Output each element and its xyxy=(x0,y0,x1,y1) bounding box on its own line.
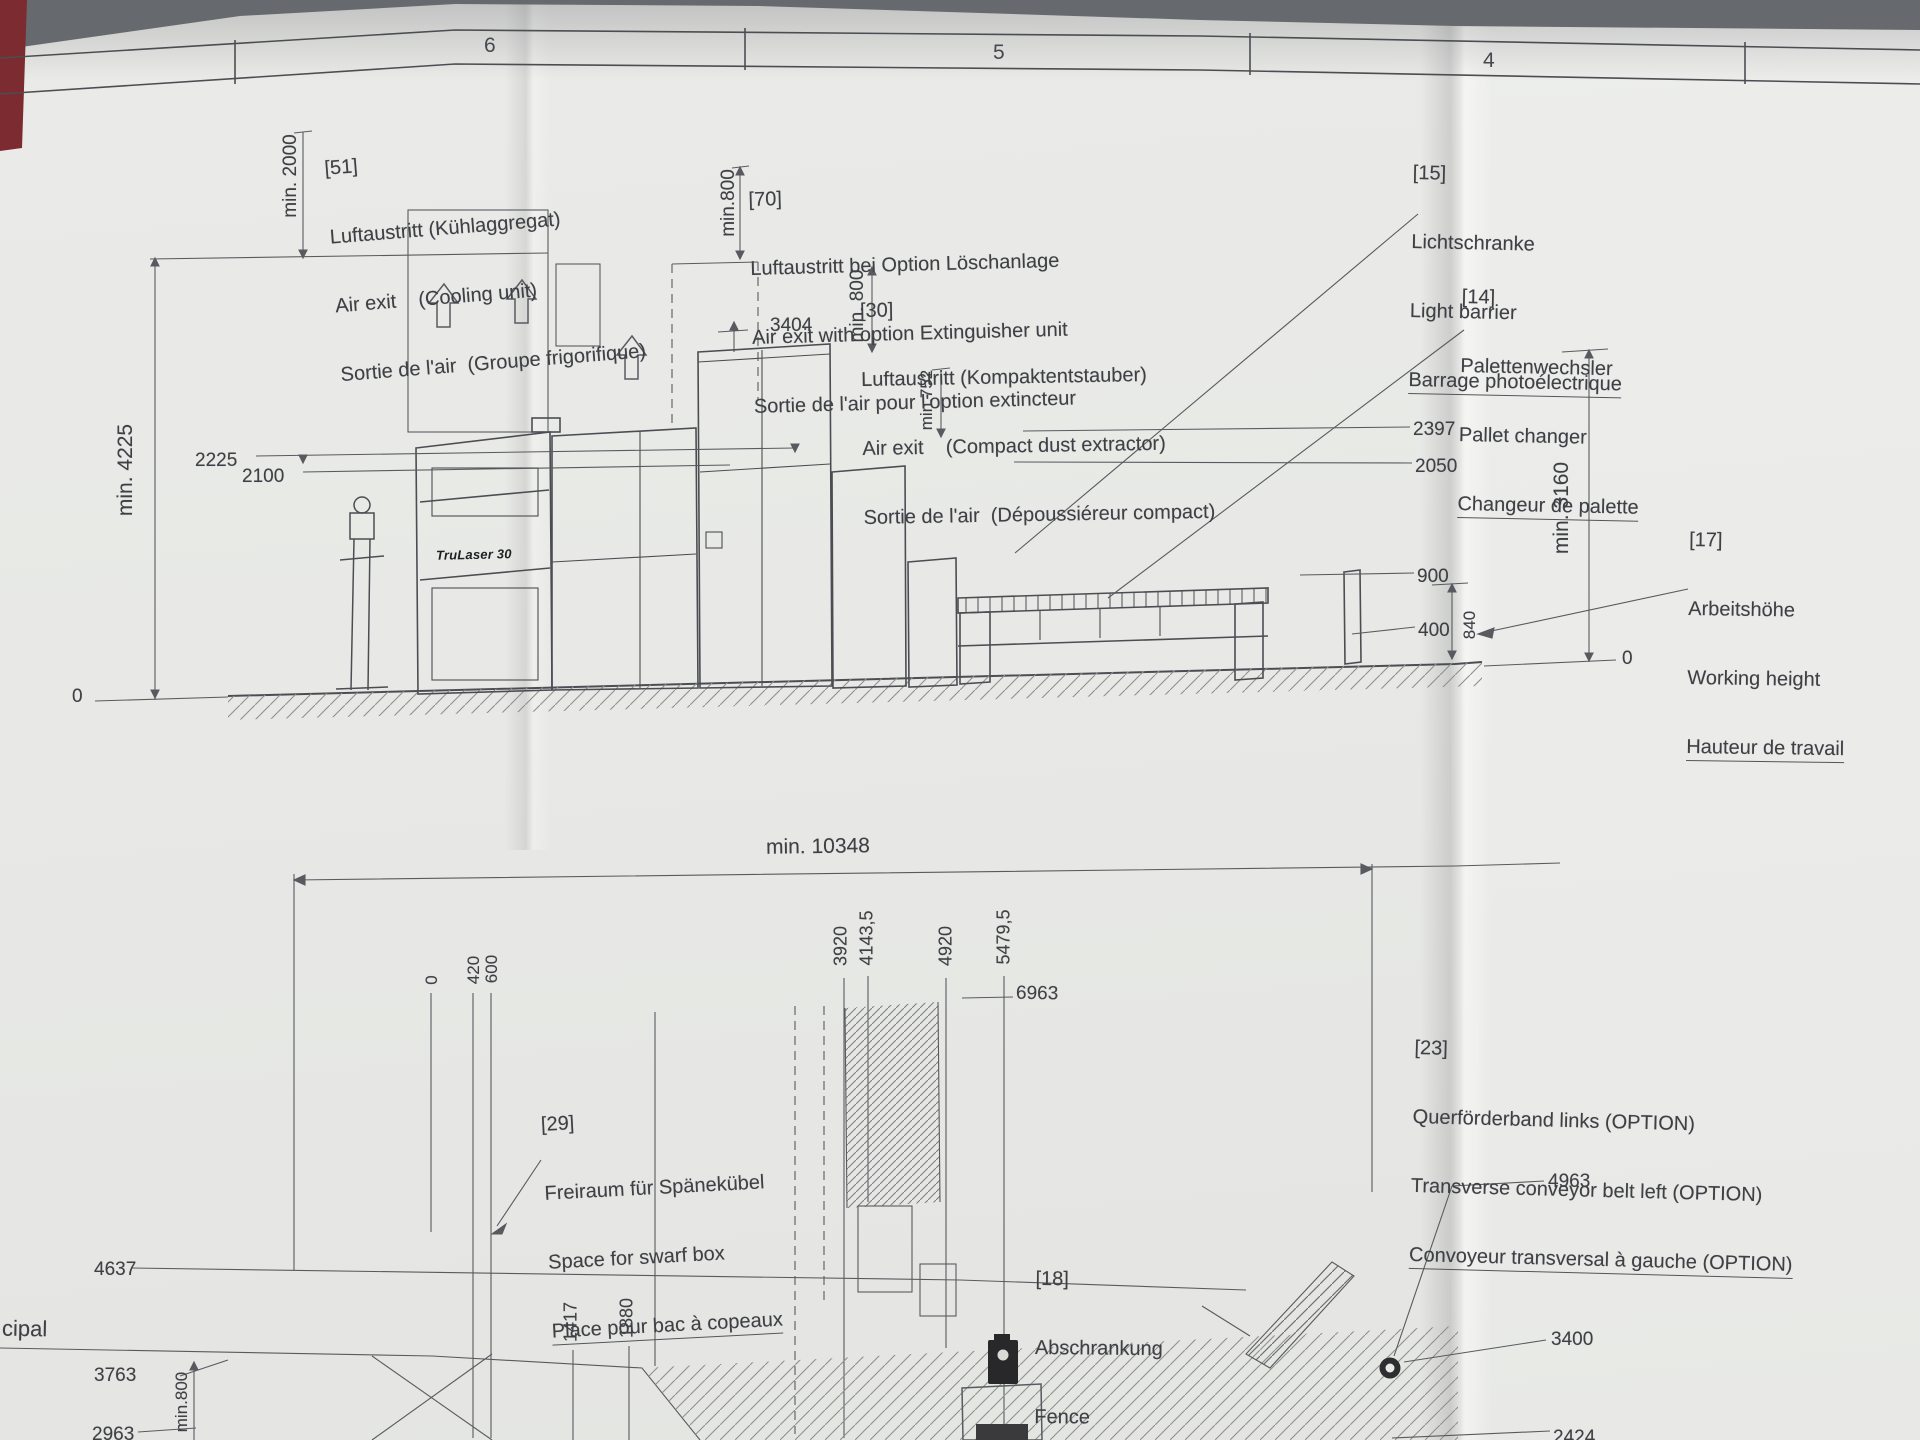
dim-900: 900 xyxy=(1417,566,1449,588)
machine-brand-label: TruLaser 30 xyxy=(436,546,512,563)
dim-plan-600: 600 xyxy=(482,955,502,983)
dim-plan-5479-5: 5479,5 xyxy=(994,909,1015,964)
ref-14: [14] xyxy=(1462,286,1496,310)
dim-400: 400 xyxy=(1418,620,1450,642)
dim-840: 840 xyxy=(1460,611,1480,639)
annotation-18: [18] Abschrankung Fence Délimitation xyxy=(1033,1222,1164,1440)
dim-plan-4920: 4920 xyxy=(936,926,957,966)
dim-min-4225: min. 4225 xyxy=(114,424,138,516)
ref-18: [18] xyxy=(1035,1268,1069,1291)
sheet-frame xyxy=(0,28,1920,94)
dim-plan-min-800: min.800 xyxy=(172,1372,192,1432)
annotation-23: [23] Querförderband links (OPTION) Trans… xyxy=(1408,991,1800,1325)
dim-min-752: min.752 xyxy=(917,370,937,430)
dim-1880: 1880 xyxy=(617,1298,638,1338)
photo-background-top xyxy=(0,0,1920,50)
installation-drawing-photo: 6 5 4 [51] Luftaustritt (Kühlaggregat) A… xyxy=(0,0,1920,1440)
ref-15: [15] xyxy=(1413,162,1447,186)
dim-3763: 3763 xyxy=(94,1365,136,1387)
grid-zone-5: 5 xyxy=(993,41,1005,65)
dim-plan-0: 0 xyxy=(422,975,442,984)
ref-70: [70] xyxy=(748,188,782,212)
dim-zero-left: 0 xyxy=(72,686,83,708)
light-barrier-post xyxy=(1344,570,1361,664)
ground-hatch xyxy=(228,662,1482,720)
dim-min-800-dust: min. 800 xyxy=(847,270,869,343)
dim-2424: 2424 xyxy=(1553,1427,1595,1440)
annotation-30: [30] Luftaustritt (Kompaktentstauber) Ai… xyxy=(859,248,1216,576)
dim-4637: 4637 xyxy=(94,1259,136,1281)
dim-3400: 3400 xyxy=(1551,1329,1593,1351)
dim-zero-right: 0 xyxy=(1622,648,1633,670)
label-principal-partial: cipal xyxy=(2,1316,48,1343)
dim-min-800-ext: min.800 xyxy=(718,169,740,237)
ref-29: [29] xyxy=(540,1112,575,1137)
ref-23: [23] xyxy=(1414,1037,1448,1061)
dim-plan-3920: 3920 xyxy=(831,926,852,966)
dim-4963: 4963 xyxy=(1548,1171,1590,1193)
dim-min-3160: min. 3160 xyxy=(1550,462,1574,554)
red-paper-edge xyxy=(0,0,27,151)
swarf-area-hatch xyxy=(845,1002,940,1208)
dim-plan-4143-5: 4143,5 xyxy=(857,910,878,965)
dim-2100: 2100 xyxy=(242,466,284,488)
dim-plan-420: 420 xyxy=(464,956,484,984)
grid-zone-4: 4 xyxy=(1483,49,1495,73)
annotation-17: [17] Arbeitshöhe Working height Hauteur … xyxy=(1685,483,1847,809)
dim-6963: 6963 xyxy=(1016,983,1059,1006)
grid-zone-6: 6 xyxy=(484,34,496,58)
dim-2050: 2050 xyxy=(1415,456,1457,478)
dim-2963: 2963 xyxy=(92,1424,134,1440)
dim-2397: 2397 xyxy=(1413,419,1455,441)
ref-51: [51] xyxy=(324,155,359,181)
dim-1417: 1417 xyxy=(561,1302,582,1342)
dim-2225: 2225 xyxy=(195,450,237,472)
annotation-51: [51] Luftaustritt (Kühlaggregat) Air exi… xyxy=(320,88,650,433)
dim-min-10348: min. 10348 xyxy=(766,834,870,859)
dim-min-2000: min. 2000 xyxy=(280,134,302,217)
operator-console xyxy=(336,497,388,690)
ref-17: [17] xyxy=(1689,529,1723,552)
dim-3404: 3404 xyxy=(770,315,812,337)
